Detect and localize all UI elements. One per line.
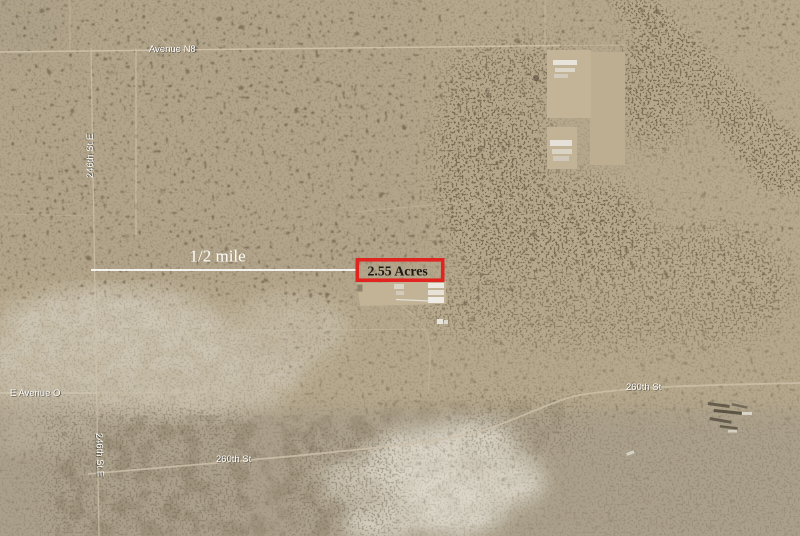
svg-text:1/2 mile: 1/2 mile <box>190 247 246 266</box>
svg-text:2.55 Acres: 2.55 Acres <box>368 263 429 278</box>
svg-text:Avenue N8: Avenue N8 <box>149 44 196 55</box>
svg-text:246th St E: 246th St E <box>85 134 96 178</box>
svg-text:246th St E: 246th St E <box>93 433 106 478</box>
svg-text:E Avenue O: E Avenue O <box>10 388 61 399</box>
svg-text:260th St: 260th St <box>626 382 662 393</box>
svg-text:260th St: 260th St <box>216 454 252 465</box>
